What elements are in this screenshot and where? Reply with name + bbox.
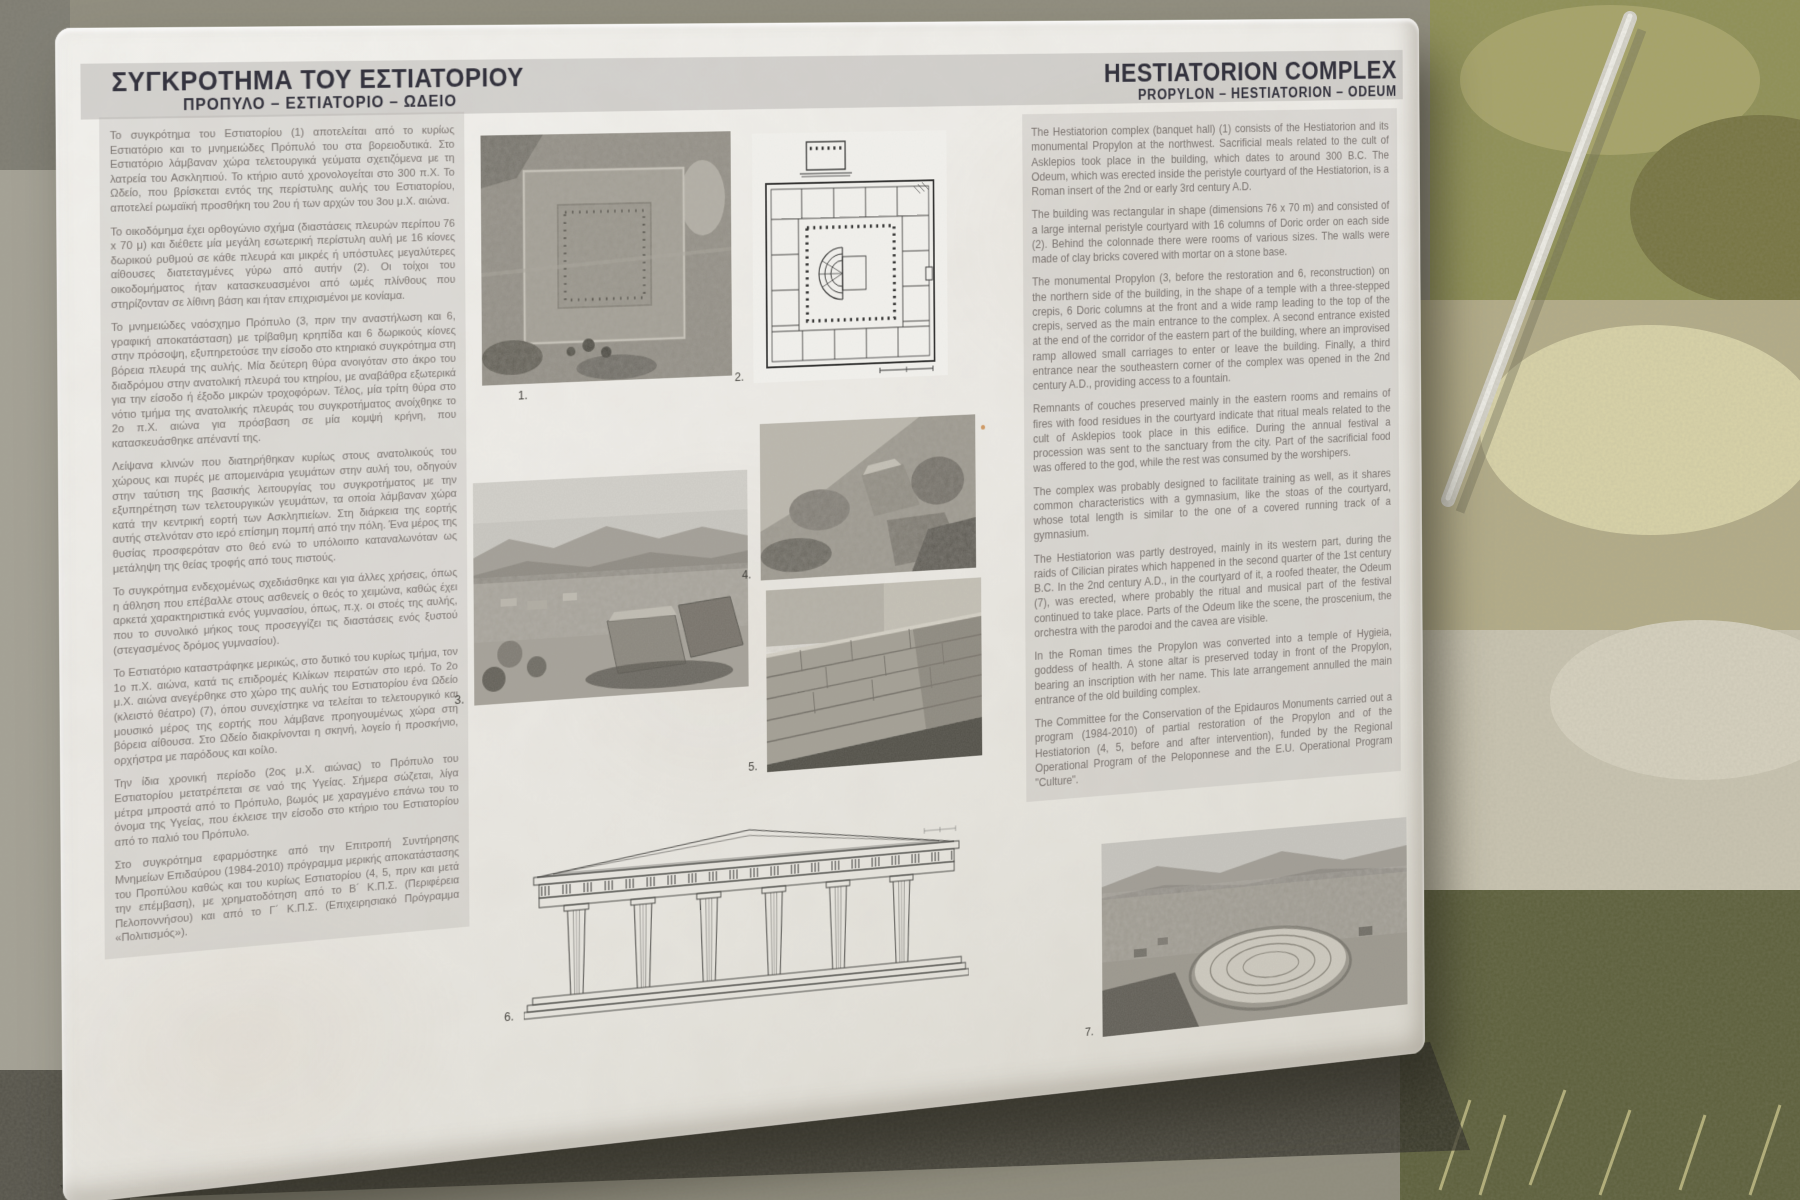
figure-restored-wall: 5.: [766, 577, 982, 772]
greek-header: ΣΥΓΚΡΟΤΗΜΑ ΤΟΥ ΕΣΤΙΑΤΟΡΙΟΥ ΠΡΟΠΥΛΟ – ΕΣΤ…: [100, 64, 535, 115]
figure-ruins-before-intervention: 4.: [760, 414, 976, 580]
outdoor-scene: ΣΥΓΚΡΟΤΗΜΑ ΤΟΥ ΕΣΤΙΑΤΟΡΙΟΥ ΠΡΟΠΥΛΟ – ΕΣΤ…: [0, 0, 1800, 1200]
english-text-column: The Hestiatorion complex (banquet hall) …: [1022, 108, 1401, 802]
figure-caption: 6.: [504, 1009, 514, 1024]
figure-odeum-photo: 7.: [1101, 817, 1407, 1037]
figure-caption: 5.: [748, 759, 757, 774]
english-paragraph: The Hestiatorion complex (banquet hall) …: [1031, 119, 1389, 199]
orange-speck: [981, 425, 985, 430]
ground-plan-image: [752, 130, 948, 383]
greek-paragraph: Στο συγκρότημα εφαρμόστηκε από την Επιτρ…: [115, 831, 460, 946]
greek-paragraph: Το συγκρότημα ενδεχομένως σχεδιάσθηκε κα…: [113, 566, 458, 658]
figure-caption: 4.: [742, 567, 751, 582]
restored-wall-image: [766, 577, 982, 772]
ruins-before-image: [760, 414, 976, 580]
greek-text-column: Το συγκρότημα του Εστιατορίου (1) αποτελ…: [99, 112, 469, 960]
elevation-drawing-image: [523, 809, 969, 1022]
figure-aerial-photo: 1.: [480, 131, 732, 385]
figure-ground-plan: 2.: [752, 130, 948, 383]
ruins-panorama-image: [473, 470, 749, 706]
english-paragraph: The Hestiatorion was partly destroyed, m…: [1034, 531, 1392, 641]
figure-caption: 3.: [454, 692, 464, 707]
greek-title: ΣΥΓΚΡΟΤΗΜΑ ΤΟΥ ΕΣΤΙΑΤΟΡΙΟΥ: [100, 64, 535, 97]
figure-elevation-drawing: 6.: [523, 809, 969, 1022]
english-paragraph: The complex was probably designed to fac…: [1033, 466, 1391, 544]
odeum-photo-image: [1101, 817, 1407, 1037]
greek-paragraph: Το μνημειώδες ναόσχημο Πρόπυλο (3, πριν …: [111, 310, 456, 452]
greek-paragraph: Το συγκρότημα του Εστιατορίου (1) αποτελ…: [110, 124, 455, 217]
figure-caption: 7.: [1085, 1024, 1094, 1039]
figure-caption: 2.: [735, 369, 744, 383]
greek-paragraph: Το οικοδόμημα έχει ορθογώνιο σχήμα (διασ…: [110, 217, 455, 313]
figure-caption: 1.: [518, 388, 528, 403]
english-paragraph: The building was rectangular in shape (d…: [1032, 198, 1390, 266]
greek-paragraph: Λείψανα κλινών που διατηρήθηκαν κυρίως σ…: [112, 445, 457, 577]
greek-paragraph: Το Εστιατόριο καταστράφηκε μερικώς, στο …: [113, 645, 458, 769]
english-paragraph: The Committee for the Conservation of th…: [1035, 690, 1393, 791]
english-paragraph: Remnants of couches preserved mainly in …: [1033, 386, 1391, 476]
english-paragraph: The monumental Propylon (3, before the r…: [1032, 264, 1390, 394]
aerial-photo-image: [480, 131, 732, 385]
information-panel: ΣΥΓΚΡΟΤΗΜΑ ΤΟΥ ΕΣΤΙΑΤΟΡΙΟΥ ΠΡΟΠΥΛΟ – ΕΣΤ…: [55, 18, 1425, 1200]
figure-ruins-panorama: 3.: [473, 470, 749, 706]
english-header: HESTIATORION COMPLEX PROPYLON – HESTIATO…: [957, 57, 1397, 106]
